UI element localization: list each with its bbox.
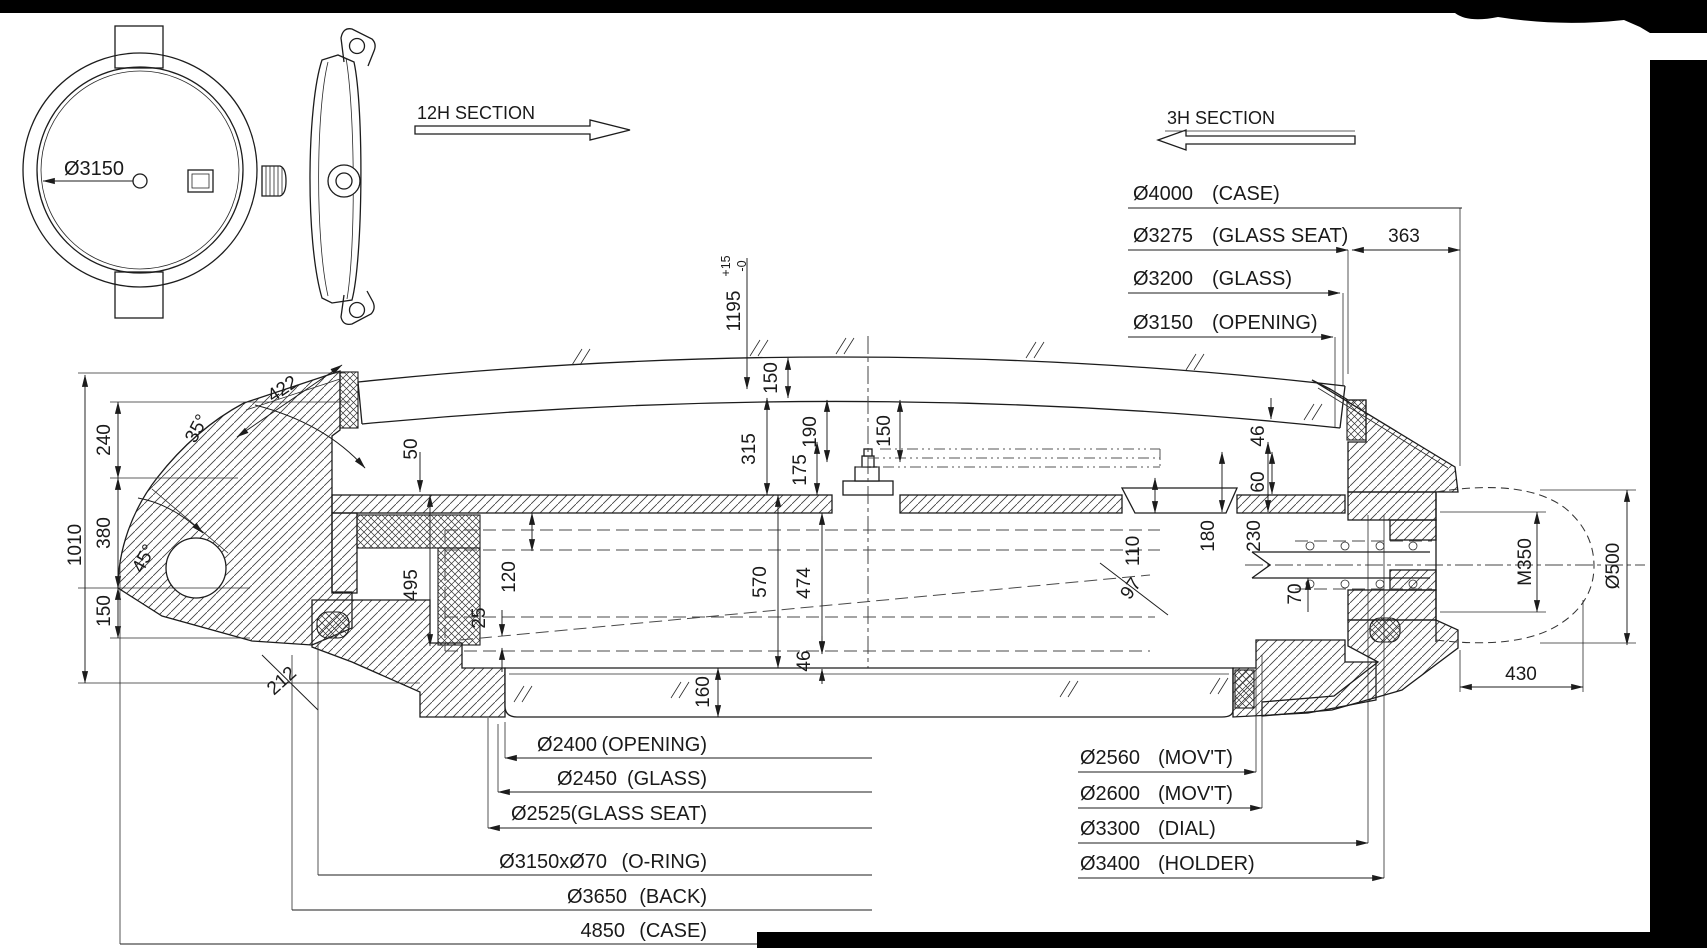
case-outer-circle xyxy=(23,53,257,287)
dim-212: 212 xyxy=(263,663,301,700)
lug-ear-bottom xyxy=(341,291,374,324)
callout-glass-bottom-value: Ø2450 xyxy=(557,768,617,790)
dim-150-hands: 150 xyxy=(874,415,895,447)
lug-hole xyxy=(166,538,226,598)
mask-top-right-blob xyxy=(1455,0,1707,33)
crown-front xyxy=(262,166,286,196)
hidden-hands-lines xyxy=(856,449,1160,467)
dim-46-back: 46 xyxy=(794,650,815,671)
arrow-right-icon xyxy=(415,120,630,140)
callout-opening-bottom-value: Ø2400 xyxy=(537,734,597,756)
crystal-glass xyxy=(358,338,1345,428)
dial-cup xyxy=(1122,488,1237,513)
center-post xyxy=(133,174,147,188)
section-label-3h: 3H SECTION xyxy=(1167,108,1275,128)
mask-top-bar xyxy=(0,0,1707,13)
callout-dial-note: (DIAL) xyxy=(1158,818,1216,840)
callout-case-total-value: 4850 xyxy=(581,920,626,942)
callout-glass-seat-bottom-note: (GLASS SEAT) xyxy=(571,803,707,825)
date-window-inner xyxy=(192,174,209,188)
callout-glass-top-value: Ø3200 xyxy=(1133,268,1193,290)
strap-bottom xyxy=(115,272,163,318)
callout-back-value: Ø3650 xyxy=(567,886,627,908)
dim-150-left: 150 xyxy=(94,595,115,627)
section-label-12h: 12H SECTION xyxy=(417,103,535,123)
callout-movt1-value: Ø2560 xyxy=(1080,747,1140,769)
callout-back-note: (BACK) xyxy=(639,886,707,908)
dim-495: 495 xyxy=(401,569,422,601)
lug-screw-top xyxy=(350,39,365,54)
cross-section xyxy=(118,336,1645,717)
callout-case-total-note: (CASE) xyxy=(639,920,707,942)
section-markers: 12H SECTION 3H SECTION xyxy=(415,103,1355,150)
dim-150-glass: 150 xyxy=(761,362,782,394)
callout-holder-value: Ø3400 xyxy=(1080,853,1140,875)
movement-ring-plate xyxy=(332,488,1345,593)
dim-430: 430 xyxy=(1505,664,1537,685)
movement-gasket-band xyxy=(357,515,480,548)
strap-top xyxy=(115,26,163,68)
back-gasket-right xyxy=(1235,670,1254,708)
watch-case-section-drawing: Ø3150 12H SECTION 3H SECTION xyxy=(0,0,1707,948)
callout-oring-value: Ø3150xØ70 xyxy=(499,851,607,873)
crown-side xyxy=(328,165,360,197)
lug-screw-bottom xyxy=(350,303,365,318)
callout-dial-value: Ø3300 xyxy=(1080,818,1140,840)
dim-363: 363 xyxy=(1388,226,1420,247)
callout-glass-seat-bottom-value: Ø2525 xyxy=(511,803,571,825)
callout-glass-bottom-note: (GLASS) xyxy=(627,768,707,790)
back-oring-left xyxy=(317,612,349,638)
callout-case-top-value: Ø4000 xyxy=(1133,183,1193,205)
side-view xyxy=(310,29,375,325)
dim-1195-tol-upper: +15 xyxy=(719,255,733,276)
callout-opening-top-note: (OPENING) xyxy=(1212,312,1318,334)
dim-315: 315 xyxy=(739,433,760,465)
glass-marks xyxy=(572,338,1322,420)
dim-1195: 1195 xyxy=(724,291,745,332)
dim-240: 240 xyxy=(94,424,115,456)
front-diameter-label: Ø3150 xyxy=(64,158,124,180)
dim-120: 120 xyxy=(499,561,520,593)
callout-oring-note: (O-RING) xyxy=(621,851,707,873)
callout-glass-top-note: (GLASS) xyxy=(1212,268,1292,290)
dim-1010: 1010 xyxy=(65,524,86,566)
movement-gasket-column xyxy=(438,548,480,645)
dim-110: 110 xyxy=(1123,536,1144,566)
callout-case-top-note: (CASE) xyxy=(1212,183,1280,205)
callout-movt2-value: Ø2600 xyxy=(1080,783,1140,805)
callout-movt1-note: (MOV'T) xyxy=(1158,747,1233,769)
callout-opening-top-value: Ø3150 xyxy=(1133,312,1193,334)
callout-holder-note: (HOLDER) xyxy=(1158,853,1255,875)
dim-60: 60 xyxy=(1248,471,1269,492)
dim-46-right: 46 xyxy=(1248,425,1269,446)
dim-160: 160 xyxy=(693,676,714,708)
dim-380: 380 xyxy=(94,517,115,549)
callout-glass-seat-top-value: Ø3275 xyxy=(1133,225,1193,247)
front-view: Ø3150 xyxy=(23,26,286,318)
dim-570: 570 xyxy=(750,566,771,598)
dim-1195-tol-lower: -0 xyxy=(735,260,749,271)
callout-opening-bottom-note: (OPENING) xyxy=(601,734,707,756)
dim-70: 70 xyxy=(1285,583,1306,604)
dim-m350: M350 xyxy=(1515,538,1536,586)
mask-bottom-bar xyxy=(757,932,1707,948)
dim-175: 175 xyxy=(790,454,811,486)
dim-230: 230 xyxy=(1244,520,1265,552)
dim-50: 50 xyxy=(401,438,422,459)
callout-movt2-note: (MOV'T) xyxy=(1158,783,1233,805)
dim-25: 25 xyxy=(469,607,490,628)
mask-right-band xyxy=(1650,60,1707,948)
dim-190: 190 xyxy=(800,416,821,448)
arrow-left-icon xyxy=(1158,130,1355,150)
dim-474: 474 xyxy=(794,567,815,599)
callout-glass-seat-top-note: (GLASS SEAT) xyxy=(1212,225,1348,247)
dim-180: 180 xyxy=(1198,520,1219,552)
crystal-gasket-left xyxy=(340,372,358,428)
technical-drawing-page: Ø3150 12H SECTION 3H SECTION xyxy=(0,0,1707,948)
dim-d500: Ø500 xyxy=(1603,543,1624,589)
back-glass xyxy=(505,668,1233,717)
